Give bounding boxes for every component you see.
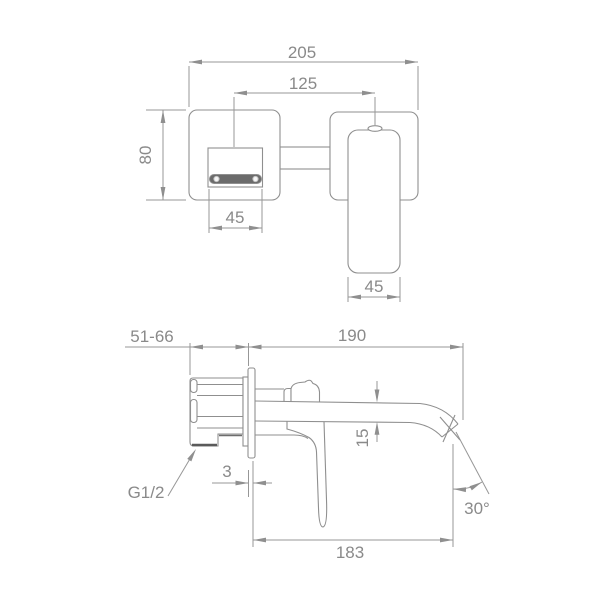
dim-spout-tube-height: 15 [353,381,379,447]
dim-handle-width-label: 45 [365,277,384,296]
angle-reference-line [456,432,489,494]
dim-trim-plate-thickness-label: 3 [222,462,231,481]
aerator-screw-right [253,176,258,181]
connector-bar [280,147,330,169]
valve-body [190,377,249,446]
technical-drawing-page: 205 125 80 45 [0,0,600,600]
dim-spout-tube-height-label: 15 [353,429,372,448]
handle-pin [368,126,382,132]
dim-trim-plate-thickness: 3 [212,462,272,497]
dim-outlet-projection: 183 [253,444,453,562]
dim-outlet-projection-label: 183 [336,543,364,562]
cartridge-dome [255,380,320,402]
wall-plate-side [248,368,255,458]
side-view: 51-66 190 15 3 [125,326,490,562]
dim-installation-depth: 51-66 [125,327,249,375]
dim-plate-height-label: 80 [136,146,155,165]
dim-spout-width-label: 45 [226,208,245,227]
dim-outlet-angle: 30° [453,432,490,518]
callout-inlet-thread-label: G1/2 [128,483,165,502]
dim-installation-depth-label: 51-66 [130,327,173,346]
callout-inlet-thread: G1/2 [128,448,198,502]
aerator-screw-left [214,176,219,181]
dim-plate-height: 80 [136,110,186,200]
faucet-technical-drawing: 205 125 80 45 [0,0,600,600]
dim-hole-spacing-label: 125 [289,74,317,93]
dim-handle-width: 45 [348,277,400,302]
body-chin [255,435,308,439]
handle-front [348,130,400,273]
dim-spout-reach-label: 190 [338,326,366,345]
dim-outlet-angle-label: 30° [464,499,490,518]
dim-overall-width-label: 205 [288,43,316,62]
front-view: 205 125 80 45 [136,43,418,302]
